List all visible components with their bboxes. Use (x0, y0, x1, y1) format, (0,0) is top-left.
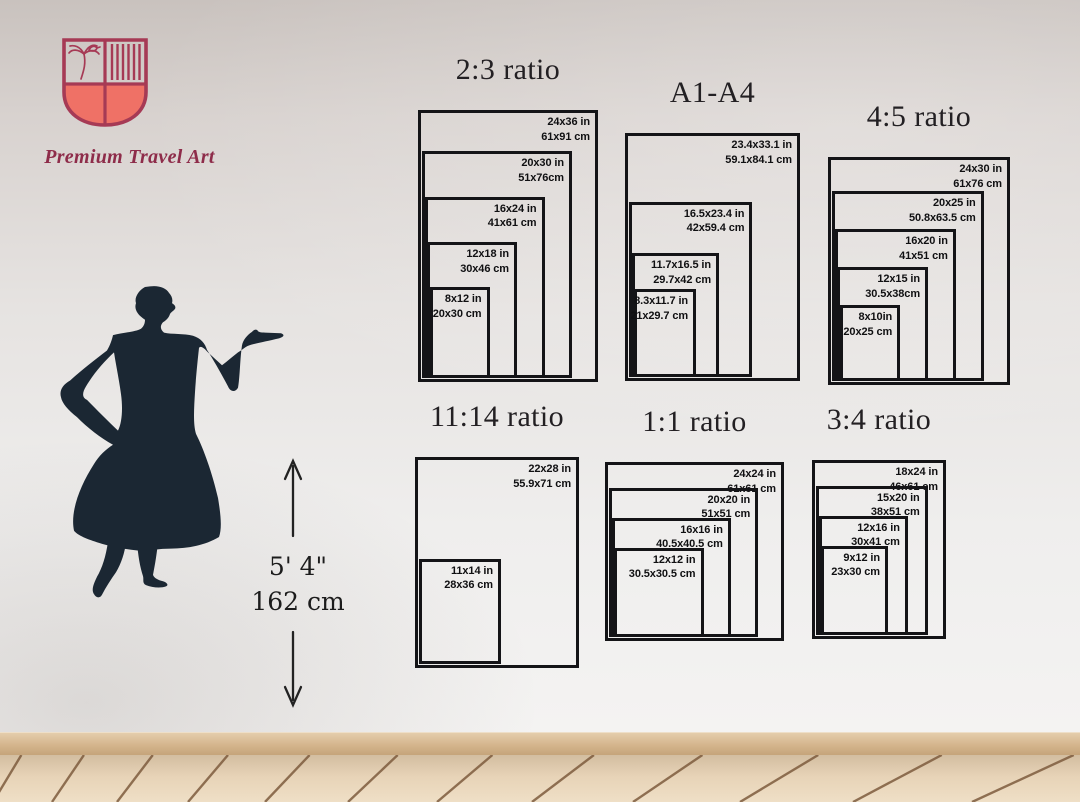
size-label-cm: 20x25 cm (843, 325, 892, 340)
size-label: 11x14 in28x36 cm (444, 564, 493, 593)
size-label-cm: 61x91 cm (541, 130, 590, 145)
size-label-inches: 11x14 in (444, 564, 493, 579)
size-label: 12x12 in30.5x30.5 cm (629, 553, 696, 582)
size-label-inches: 18x24 in (889, 465, 938, 480)
size-label: 23.4x33.1 in59.1x84.1 cm (725, 138, 792, 167)
size-label-cm: 21x29.7 cm (630, 309, 688, 324)
height-metric-label: 162 cm (243, 587, 353, 616)
group-title-ratio-4-5: 4:5 ratio (783, 100, 1055, 134)
size-group-a1-a4: 23.4x33.1 in59.1x84.1 cm16.5x23.4 in42x5… (625, 133, 800, 381)
size-label-cm: 30x46 cm (460, 262, 509, 277)
palm-bird-emblem-icon (69, 45, 100, 79)
size-label-inches: 8x10in (843, 310, 892, 325)
size-label-inches: 12x16 in (851, 521, 900, 536)
size-label: 16x24 in41x61 cm (488, 202, 537, 231)
size-box: 8x12 in20x30 cm (430, 287, 490, 378)
size-label-cm: 59.1x84.1 cm (725, 153, 792, 168)
size-label-cm: 23x30 cm (831, 565, 880, 580)
size-label-inches: 20x30 in (518, 156, 564, 171)
shield-logo-icon (60, 36, 150, 128)
size-label-inches: 16x16 in (656, 523, 723, 538)
size-label-cm: 61x76 cm (953, 177, 1002, 192)
size-label-inches: 24x36 in (541, 115, 590, 130)
size-label-inches: 16x20 in (899, 234, 948, 249)
size-label: 9x12 in23x30 cm (831, 551, 880, 580)
size-label-cm: 20x30 cm (433, 307, 482, 322)
size-label: 20x30 in51x76cm (518, 156, 564, 185)
size-label-inches: 24x30 in (953, 162, 1002, 177)
size-label-inches: 9x12 in (831, 551, 880, 566)
size-label: 8x12 in20x30 cm (433, 292, 482, 321)
size-label-inches: 24x24 in (727, 467, 776, 482)
size-box: 11x14 in28x36 cm (419, 559, 501, 665)
size-label-cm: 28x36 cm (444, 578, 493, 593)
size-label: 24x30 in61x76 cm (953, 162, 1002, 191)
height-arrow-icon (268, 452, 328, 712)
size-group-ratio-1-1: 24x24 in61x61 cm20x20 in51x51 cm16x16 in… (605, 462, 784, 641)
size-label: 16x20 in41x51 cm (899, 234, 948, 263)
size-box: 8x10in20x25 cm (840, 305, 901, 381)
size-box: 9x12 in23x30 cm (821, 546, 888, 636)
size-label-inches: 22x28 in (513, 462, 571, 477)
size-label-cm: 41x51 cm (899, 249, 948, 264)
size-label-inches: 20x25 in (909, 196, 976, 211)
size-label-cm: 41x61 cm (488, 216, 537, 231)
size-label-inches: 20x20 in (701, 493, 750, 508)
size-group-ratio-11-14: 22x28 in55.9x71 cm11x14 in28x36 cm (415, 457, 579, 668)
size-label: 20x25 in50.8x63.5 cm (909, 196, 976, 225)
size-label-inches: 12x12 in (629, 553, 696, 568)
size-group-ratio-3-4: 18x24 in46x61 cm15x20 in38x51 cm12x16 in… (812, 460, 946, 639)
group-title-ratio-3-4: 3:4 ratio (767, 403, 991, 437)
size-label-inches: 11.7x16.5 in (651, 258, 711, 273)
size-label-cm: 30.5x30.5 cm (629, 567, 696, 582)
size-label-inches: 23.4x33.1 in (725, 138, 792, 153)
size-group-ratio-2-3: 24x36 in61x91 cm20x30 in51x76cm16x24 in4… (418, 110, 598, 382)
height-imperial-label: 5' 4" (243, 552, 353, 581)
size-label-cm: 51x76cm (518, 171, 564, 186)
size-label: 8x10in20x25 cm (843, 310, 892, 339)
size-box: 8.3x11.7 in21x29.7 cm (634, 289, 696, 377)
size-label-inches: 12x18 in (460, 247, 509, 262)
size-label-cm: 50.8x63.5 cm (909, 211, 976, 226)
size-group-ratio-4-5: 24x30 in61x76 cm20x25 in50.8x63.5 cm16x2… (828, 157, 1010, 385)
poster-size-chart-scene: Premium Travel Art 5' 4" 162 cm 2:3 rati… (0, 0, 1080, 802)
size-label: 24x36 in61x91 cm (541, 115, 590, 144)
size-label-inches: 8x12 in (433, 292, 482, 307)
size-label-inches: 16.5x23.4 in (684, 207, 745, 222)
size-label-cm: 30.5x38cm (865, 287, 920, 302)
size-label-inches: 8.3x11.7 in (630, 294, 688, 309)
size-label: 11.7x16.5 in29.7x42 cm (651, 258, 711, 287)
size-label-cm: 42x59.4 cm (684, 221, 745, 236)
size-label-inches: 16x24 in (488, 202, 537, 217)
size-label: 16.5x23.4 in42x59.4 cm (684, 207, 745, 236)
size-label: 8.3x11.7 in21x29.7 cm (630, 294, 688, 323)
size-label-cm: 55.9x71 cm (513, 477, 571, 492)
size-label-inches: 12x15 in (865, 272, 920, 287)
size-label-cm: 29.7x42 cm (651, 273, 711, 288)
size-label: 12x18 in30x46 cm (460, 247, 509, 276)
size-label: 22x28 in55.9x71 cm (513, 462, 571, 491)
size-box: 12x12 in30.5x30.5 cm (614, 548, 704, 638)
size-label-inches: 15x20 in (871, 491, 920, 506)
brand-name: Premium Travel Art (22, 146, 237, 169)
size-label: 12x15 in30.5x38cm (865, 272, 920, 301)
